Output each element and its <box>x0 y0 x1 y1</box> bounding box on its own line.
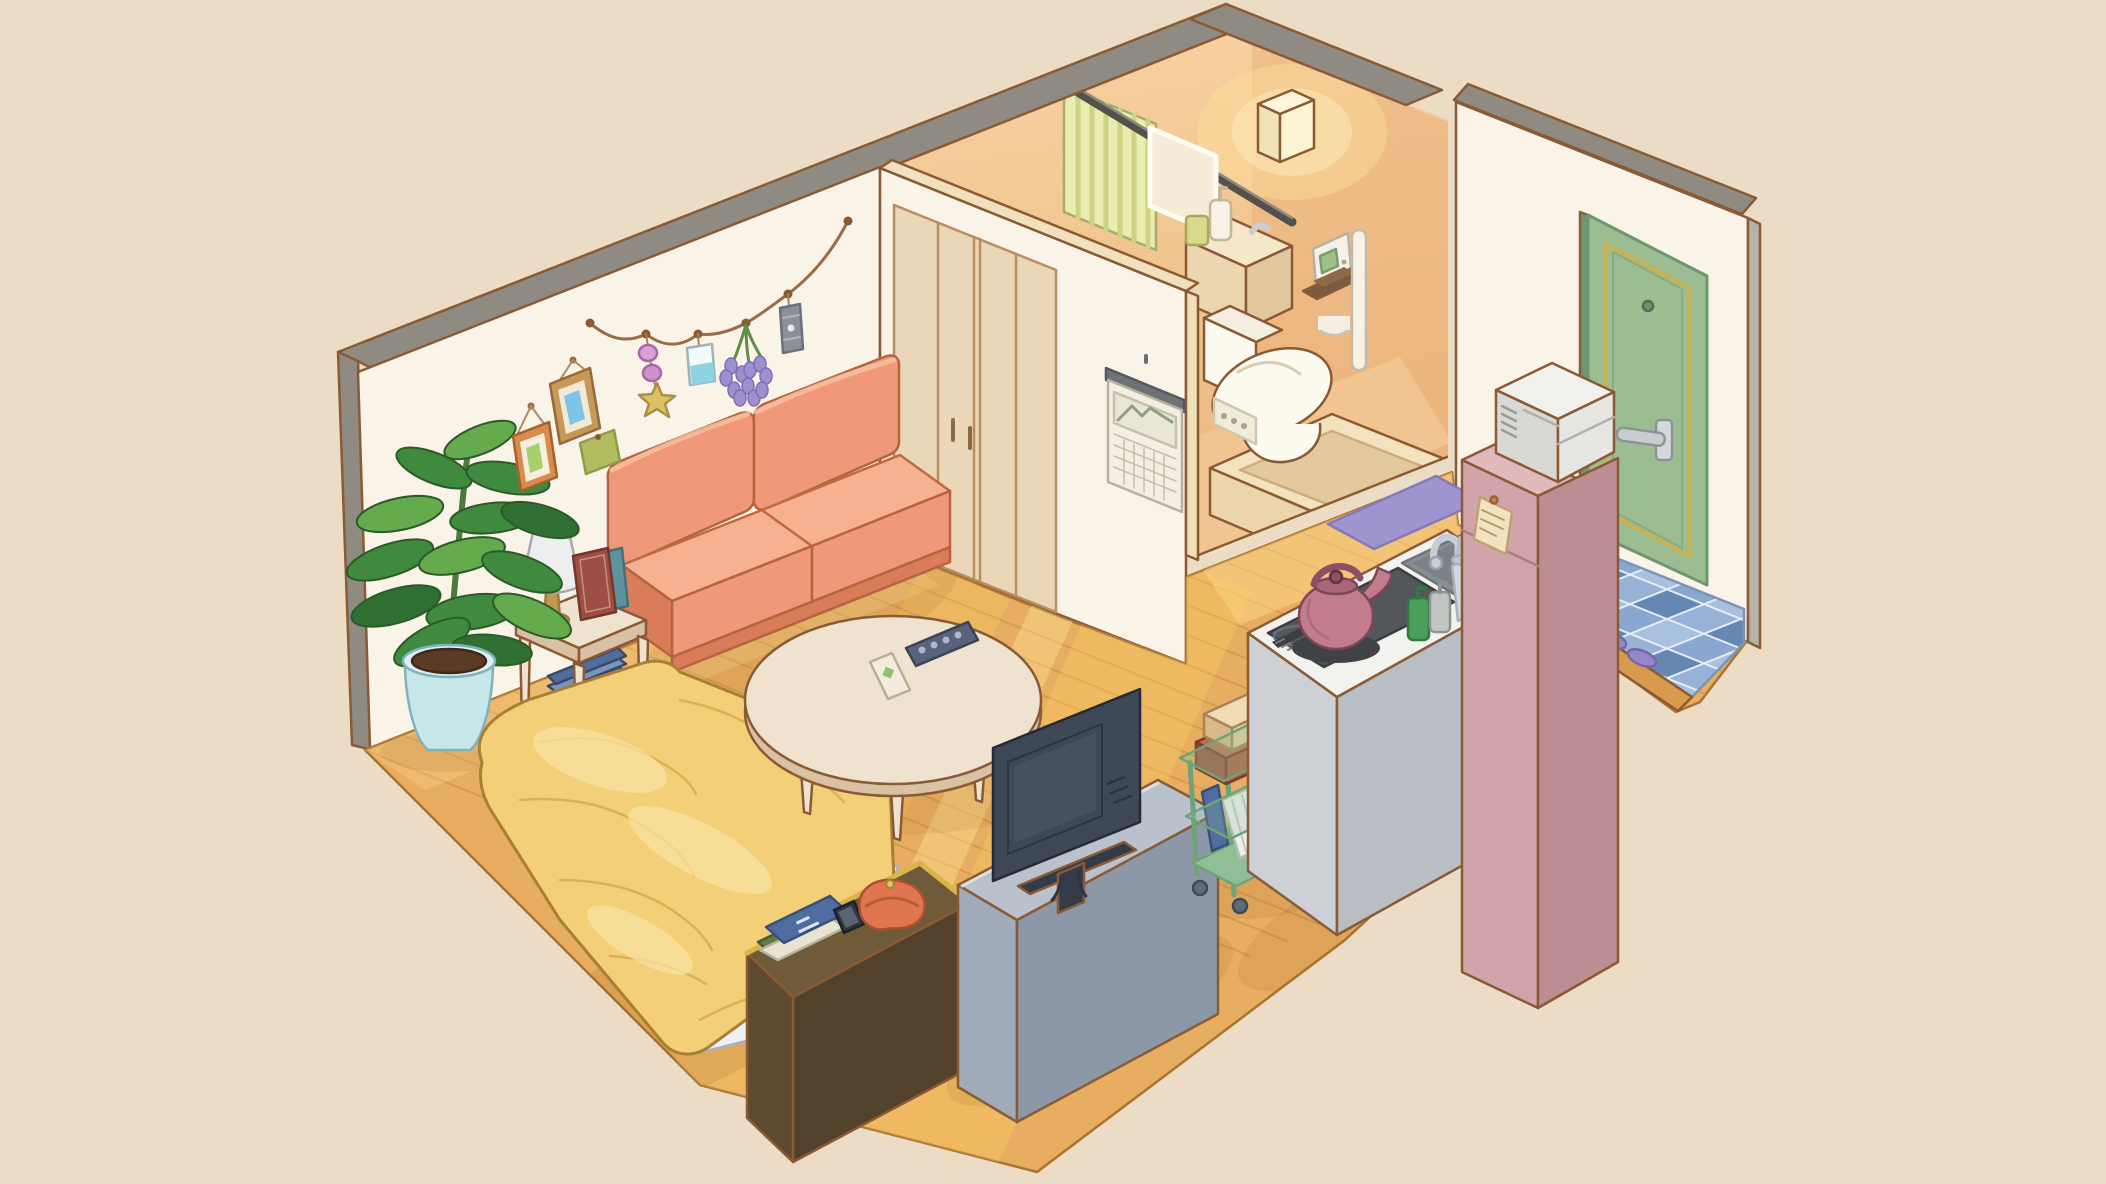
apartment-illustration <box>0 0 2106 1184</box>
peephole <box>1643 301 1653 311</box>
scene <box>0 0 2106 1184</box>
bath-cup <box>1186 216 1208 245</box>
doorway-jamb <box>1186 291 1198 560</box>
pot-soil <box>412 649 486 673</box>
grab-bar <box>1352 230 1366 370</box>
refrigerator <box>1462 442 1618 1008</box>
entry-wall-right-edge <box>1748 218 1760 648</box>
orange-pouch <box>859 880 924 930</box>
wall-light <box>1258 90 1314 162</box>
